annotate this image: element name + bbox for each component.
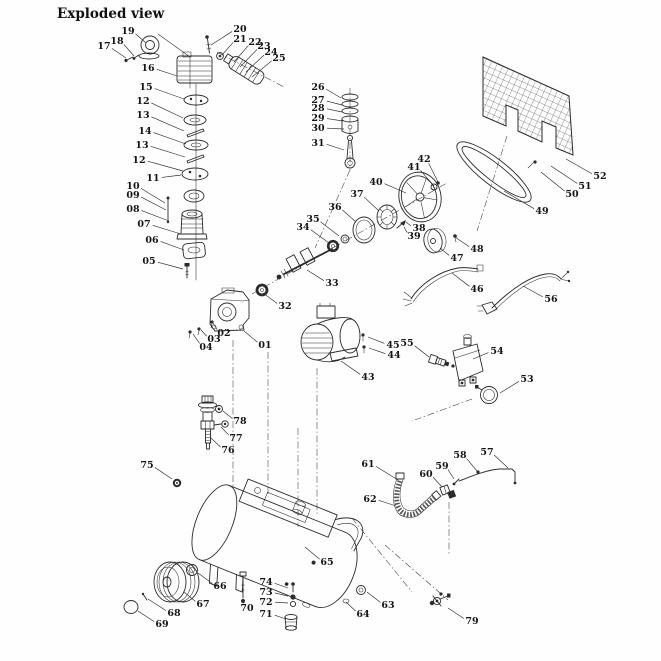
wheel	[154, 562, 199, 602]
part-label-67: 67	[196, 599, 209, 610]
leader-line-61	[376, 466, 398, 480]
leader-line-56	[523, 286, 543, 297]
part-label-13: 13	[136, 110, 149, 121]
leader-line-46	[452, 273, 469, 286]
part-label-78: 78	[233, 416, 247, 427]
part-label-32: 32	[278, 301, 291, 312]
flywheel	[394, 168, 445, 226]
pressure-switch	[451, 335, 483, 387]
leader-line-65	[305, 547, 320, 559]
part-label-70: 70	[240, 603, 254, 614]
part-label-46: 46	[470, 284, 484, 295]
part-label-04: 04	[199, 342, 213, 353]
part-label-08: 08	[126, 204, 140, 215]
leader-line-34	[311, 230, 329, 243]
discharge-hose	[393, 473, 441, 518]
leader-line-63	[367, 592, 380, 602]
part-label-77: 77	[229, 433, 242, 444]
part-label-05: 05	[142, 256, 155, 267]
wheel-pin	[142, 593, 147, 600]
leader-line-21	[222, 42, 233, 55]
filter-screws	[124, 55, 139, 62]
cylinder-head	[177, 52, 212, 83]
part-label-75: 75	[140, 460, 153, 471]
tank-nut	[174, 480, 180, 486]
leader-line-45	[368, 337, 384, 343]
v-belt	[450, 133, 539, 210]
leader-line-75	[155, 467, 172, 479]
part-label-26: 26	[311, 82, 325, 93]
leader-line-06	[161, 241, 184, 250]
leader-line-69	[138, 611, 154, 622]
leader-line-55	[415, 346, 429, 357]
leader-line-12	[151, 103, 183, 118]
valve-plate-stack	[182, 95, 208, 202]
part-label-01: 01	[258, 340, 271, 351]
crankcase	[210, 288, 249, 331]
leader-line-18	[124, 44, 134, 56]
leader-line-13	[151, 146, 185, 157]
part-label-69: 69	[155, 619, 169, 630]
exploded-view-diagram: 1918171615121314131211100908070605202122…	[0, 0, 661, 661]
leader-line-15	[155, 89, 184, 99]
part-label-12: 12	[132, 155, 145, 166]
motor-bolts	[361, 333, 365, 353]
leader-line-07	[153, 225, 181, 234]
part-label-47: 47	[450, 253, 463, 264]
leader-line-28	[327, 109, 342, 112]
part-label-44: 44	[387, 350, 401, 361]
base-gasket	[182, 242, 205, 259]
leader-line-59	[448, 470, 454, 479]
part-label-63: 63	[381, 600, 394, 611]
part-label-13: 13	[135, 140, 148, 151]
part-label-62: 62	[363, 494, 376, 505]
crankcase-gasket	[353, 217, 375, 243]
safety-valve	[199, 396, 229, 449]
leader-line-22	[234, 45, 248, 62]
part-label-49: 49	[535, 206, 549, 217]
part-label-14: 14	[138, 126, 152, 137]
part-label-41: 41	[407, 162, 420, 173]
part-label-39: 39	[407, 231, 421, 242]
part-label-58: 58	[453, 450, 467, 461]
leader-line-17	[112, 48, 126, 58]
leader-line-01	[244, 331, 258, 342]
part-label-51: 51	[578, 181, 591, 192]
leader-line-09	[141, 197, 166, 210]
part-label-31: 31	[311, 138, 324, 149]
leader-line-76	[211, 438, 221, 447]
leader-line-58	[467, 458, 477, 471]
part-label-53: 53	[520, 374, 533, 385]
belt-guard-grille	[483, 57, 573, 168]
check-valve	[429, 354, 450, 368]
part-label-60: 60	[419, 469, 433, 480]
leader-line-50	[541, 172, 565, 191]
leader-line-48	[455, 237, 469, 247]
leader-line-29	[327, 119, 343, 121]
part-label-52: 52	[593, 171, 606, 182]
intake-bolt	[205, 35, 211, 53]
cylinder	[177, 210, 207, 239]
tank-plug	[216, 406, 223, 413]
part-label-54: 54	[490, 346, 504, 357]
leader-line-26	[326, 89, 341, 98]
outlet-pipe	[453, 469, 517, 485]
leader-line-49	[504, 191, 534, 209]
part-label-34: 34	[296, 222, 310, 233]
leader-line-32	[263, 293, 277, 303]
leader-line-38	[406, 222, 411, 226]
part-label-36: 36	[328, 202, 342, 213]
part-label-11: 11	[146, 173, 159, 184]
leader-line-20	[211, 31, 232, 45]
leader-line-78	[223, 411, 232, 418]
part-label-71: 71	[259, 609, 272, 620]
part-label-76: 76	[221, 445, 235, 456]
part-label-37: 37	[350, 189, 363, 200]
intake-silencer	[222, 51, 266, 86]
part-label-55: 55	[400, 338, 413, 349]
head-bolt	[185, 263, 190, 278]
leader-line-03	[201, 330, 207, 336]
leader-line-14	[154, 133, 186, 144]
part-label-79: 79	[465, 616, 479, 627]
power-cord	[477, 271, 570, 314]
leader-line-64	[346, 602, 356, 611]
part-label-21: 21	[233, 34, 246, 45]
leader-line-71	[275, 615, 286, 619]
elbow-fitting	[440, 485, 456, 499]
part-label-07: 07	[137, 219, 150, 230]
leader-line-51	[551, 166, 577, 183]
leader-line-31	[327, 144, 344, 150]
leader-line-72	[275, 602, 288, 603]
part-label-43: 43	[361, 372, 374, 383]
part-label-09: 09	[126, 190, 140, 201]
part-label-17: 17	[97, 41, 110, 52]
part-label-25: 25	[272, 53, 285, 64]
leader-line-10	[141, 188, 165, 203]
part-label-06: 06	[145, 235, 159, 246]
part-label-33: 33	[325, 278, 338, 289]
head-stud	[167, 197, 170, 224]
leader-line-41	[421, 170, 434, 186]
oil-seal	[257, 285, 267, 295]
leader-line-53	[500, 381, 519, 393]
leader-line-11	[162, 175, 181, 177]
leader-line-77	[221, 427, 229, 435]
part-label-16: 16	[141, 63, 155, 74]
crank-nut	[341, 235, 349, 243]
leader-line-05	[158, 262, 183, 269]
leader-line-16	[157, 69, 177, 76]
part-label-48: 48	[470, 244, 484, 255]
leader-line-27	[327, 101, 342, 105]
motor	[301, 303, 360, 362]
motor-pulley	[422, 227, 449, 255]
part-label-65: 65	[320, 557, 333, 568]
part-label-57: 57	[480, 447, 493, 458]
part-label-12: 12	[136, 96, 149, 107]
leader-line-44	[369, 348, 385, 354]
key-arrow	[397, 220, 406, 228]
crankshaft	[277, 248, 332, 280]
part-label-59: 59	[435, 461, 449, 472]
exploded-view-page: Exploded view	[0, 0, 661, 661]
part-label-15: 15	[139, 82, 152, 93]
foot-hardware	[285, 582, 297, 630]
leader-line-79	[448, 608, 464, 619]
leader-line-54	[473, 353, 488, 359]
leader-line-43	[341, 361, 360, 374]
part-label-50: 50	[565, 189, 579, 200]
leader-line-30	[327, 128, 344, 129]
leader-line-52	[566, 159, 592, 174]
leader-line-60	[433, 477, 442, 487]
part-label-64: 64	[356, 609, 370, 620]
leader-line-47	[440, 248, 449, 255]
leader-line-33	[307, 270, 324, 281]
drain-plug	[357, 586, 366, 595]
leader-line-57	[494, 455, 508, 468]
part-label-40: 40	[369, 177, 383, 188]
leader-line-12	[148, 161, 183, 171]
part-label-56: 56	[544, 294, 558, 305]
leader-line-13	[151, 117, 184, 131]
part-label-30: 30	[311, 123, 325, 134]
part-label-61: 61	[361, 459, 374, 470]
part-label-66: 66	[213, 581, 227, 592]
leader-line-36	[342, 210, 356, 222]
wheel-cap	[124, 601, 138, 614]
part-label-68: 68	[167, 608, 181, 619]
pressure-gauge	[475, 385, 498, 404]
leader-line-37	[364, 197, 379, 211]
part-label-72: 72	[259, 597, 272, 608]
part-label-18: 18	[110, 36, 124, 47]
